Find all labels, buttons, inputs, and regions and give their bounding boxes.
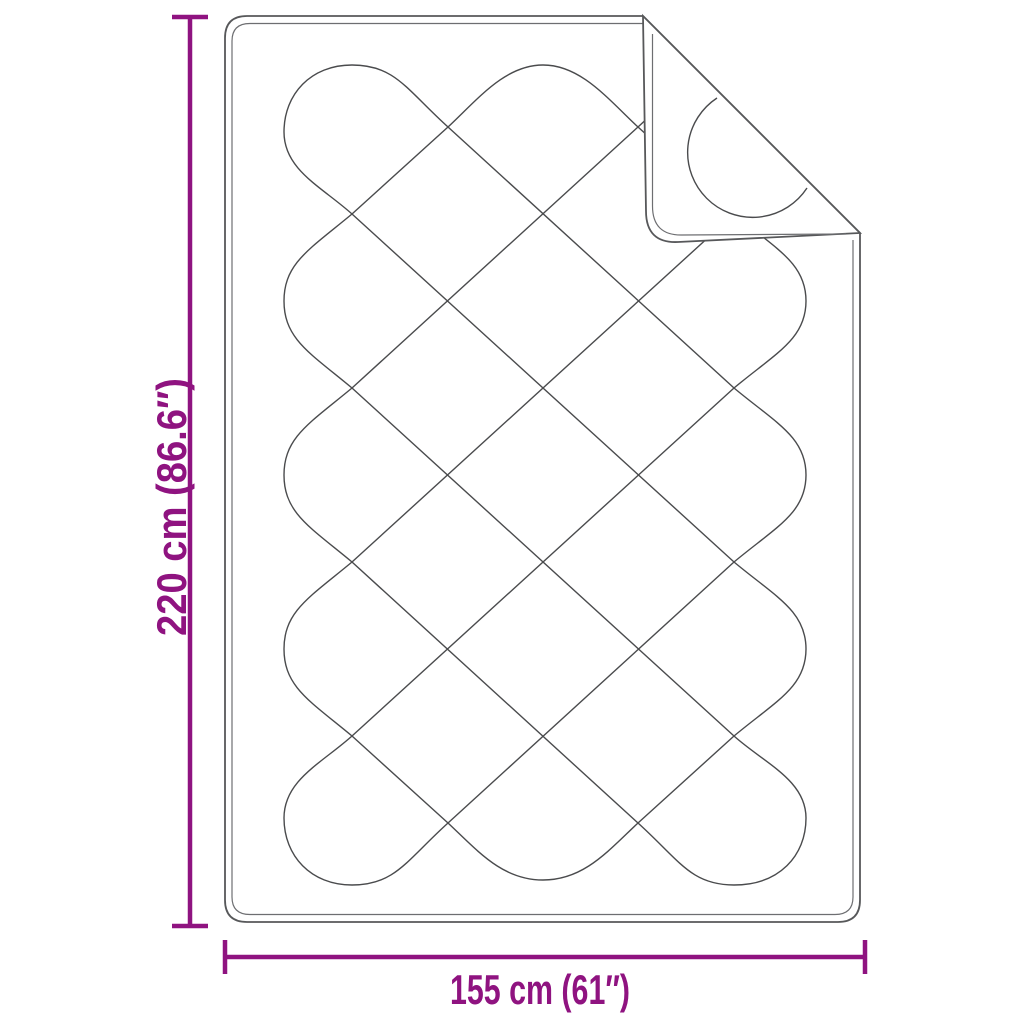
height-dimension: 220 cm (86.6″)	[148, 17, 208, 926]
width-dimension-label: 155 cm (61″)	[450, 966, 630, 1013]
width-dimension: 155 cm (61″)	[225, 940, 865, 1013]
folded-corner	[643, 16, 860, 242]
blanket-dimension-drawing: 220 cm (86.6″) 155 cm (61″)	[0, 0, 1024, 1024]
fold-flap	[643, 16, 860, 242]
product-dimension-diagram: 220 cm (86.6″) 155 cm (61″)	[0, 0, 1024, 1024]
height-dimension-label: 220 cm (86.6″)	[148, 378, 195, 636]
